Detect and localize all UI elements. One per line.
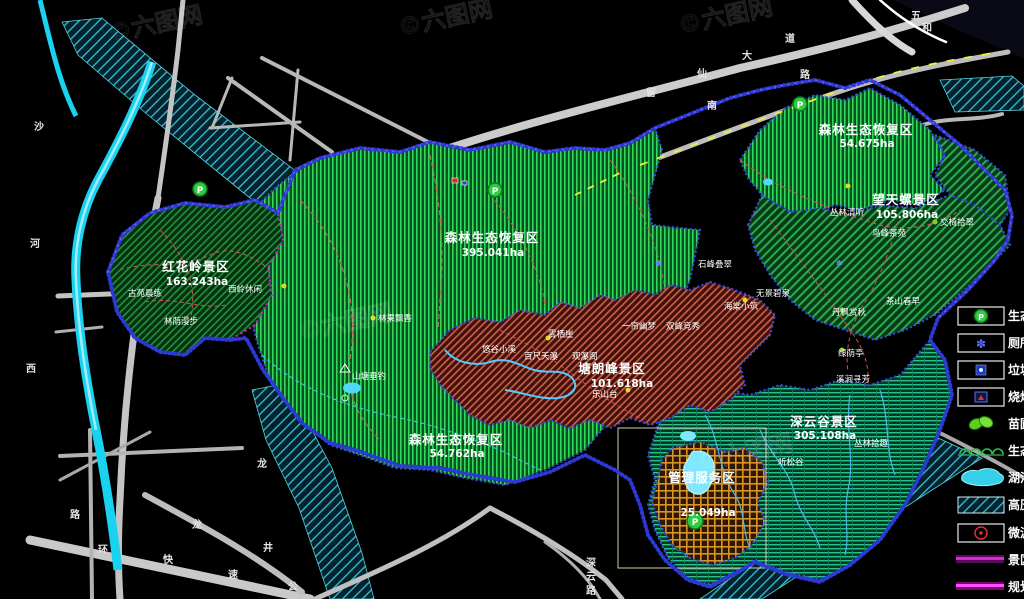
region-label: 红花岭景区 — [162, 259, 230, 274]
legend-item-microwave[interactable]: 微波站 — [958, 524, 1024, 542]
svg-text:P: P — [692, 518, 699, 528]
region-area: 163.243ha — [166, 276, 228, 288]
region-area: 101.618ha — [591, 378, 653, 390]
road-char: 云 — [586, 571, 596, 583]
pond-small — [763, 179, 773, 186]
legend-label: 规划红线 — [1008, 579, 1024, 594]
point-label: 海棠小筑 — [724, 301, 759, 312]
cad-map-viewport: P P P P ✽ ✽ 红花岭景区 163.243ha 森林生态恢复区 395.… — [0, 0, 1024, 599]
svg-text:P: P — [197, 186, 204, 196]
microwave-icon-dot — [979, 531, 983, 535]
road-char: 龙 — [256, 457, 267, 470]
legend-label: 湖泊 — [1008, 470, 1024, 485]
region-area: 105.806ha — [876, 209, 938, 221]
parking-icon[interactable]: P — [488, 183, 502, 197]
facility-icon — [462, 181, 467, 185]
road-char: 仙 — [697, 67, 707, 80]
road-char: 西 — [26, 363, 36, 375]
road-char: 留 — [646, 86, 656, 99]
road-char: 龙 — [191, 518, 202, 531]
bbq-site-icon — [452, 178, 458, 183]
road-char: 深 — [586, 556, 596, 569]
point-label: 溪涧寻芳 — [836, 374, 870, 385]
region-label: 深云谷景区 — [790, 414, 858, 429]
pond-fishing — [343, 383, 361, 394]
scenic-boundary-icon-core — [956, 557, 1004, 560]
legend-label: 生态长廊 — [1008, 443, 1024, 458]
toilet-icon: ✽ — [836, 259, 843, 268]
road-char: 公 — [288, 581, 298, 593]
road-grid-sw[interactable] — [90, 430, 92, 599]
region-area: 305.108ha — [794, 430, 856, 442]
road-char: 环 — [98, 544, 108, 556]
map-canvas: P P P P ✽ ✽ 红花岭景区 163.243ha 森林生态恢复区 395.… — [0, 0, 1024, 599]
point-label: 双峰竞秀 — [666, 321, 701, 332]
road-char: 路 — [800, 68, 811, 81]
point-label: 西岭休闲 — [228, 284, 262, 295]
pond-small — [680, 431, 696, 441]
point-label: 丹枫赏秋 — [832, 307, 867, 318]
region-label: 森林生态恢复区 — [409, 432, 504, 447]
point-label: 石峰叠翠 — [698, 259, 733, 270]
point-label: 百尺天瀑 — [524, 351, 559, 362]
region-area: 54.675ha — [839, 138, 894, 150]
legend-item-toilet[interactable]: ✽ 厕所 — [958, 334, 1024, 352]
planning-line-icon-core — [956, 584, 1004, 587]
legend-label: 厕所 — [1008, 335, 1024, 350]
legend-label: 高压走廊 — [1008, 497, 1024, 512]
point-label: 茶山春早 — [886, 296, 921, 307]
road-char: 井 — [263, 541, 273, 554]
point-label: 鸟峰茶苑 — [872, 228, 907, 239]
legend-item-bbq[interactable]: 烧烤场 — [958, 388, 1024, 406]
parking-icon[interactable]: P — [793, 97, 807, 111]
road-char: 速 — [228, 568, 238, 581]
point-label: 丛林拾趣 — [854, 438, 889, 449]
region-label: 森林生态恢复区 — [445, 230, 540, 245]
road-char: 沙 — [34, 121, 44, 133]
region-label: 塘朗峰景区 — [578, 361, 646, 376]
road-char: 道 — [785, 32, 795, 45]
hv-corridor-icon — [958, 497, 1004, 513]
road-char: 快 — [162, 553, 174, 566]
point-label: 绿荫亭 — [838, 348, 864, 359]
point-label: 山塘垂钓 — [352, 371, 386, 382]
region-area: 54.762ha — [429, 448, 484, 460]
point-label: 乐山台 — [592, 389, 618, 400]
road-char: 南 — [707, 99, 717, 112]
legend-label: 微波站 — [1007, 525, 1024, 540]
region-label: 森林生态恢复区 — [819, 122, 914, 137]
point-label: 丛林清听 — [830, 207, 865, 218]
legend-item-lake[interactable]: 湖泊 — [962, 469, 1024, 486]
poi-dot — [282, 284, 287, 289]
region-area: 395.041ha — [462, 247, 524, 259]
legend-item-hv[interactable]: 高压走廊 — [958, 497, 1024, 513]
legend-label: 苗圃 — [1008, 416, 1024, 431]
road-char: 河 — [30, 238, 40, 250]
road-char: 路 — [586, 584, 597, 597]
legend-label: 垃圾箱 — [1008, 362, 1024, 377]
point-label: 悠谷小溪 — [482, 344, 517, 355]
toilet-icon: ✽ — [976, 337, 986, 351]
point-label: 林荫漫步 — [164, 316, 198, 327]
parking-icon[interactable]: P — [193, 182, 207, 196]
poi-dot — [846, 184, 851, 189]
legend-label: 生态停车场 — [1008, 308, 1024, 323]
point-label: 古苑晨练 — [128, 288, 163, 299]
point-label: 一帘幽梦 — [622, 321, 657, 332]
legend-label: 烧烤场 — [1008, 389, 1024, 404]
road-char: 五 — [911, 10, 921, 22]
svg-text:P: P — [492, 187, 499, 197]
region-label: 望天螺景区 — [872, 192, 940, 207]
point-label: 雾栖崖 — [548, 329, 574, 340]
hv-corridor-east[interactable] — [940, 76, 1024, 112]
road-char: 大 — [742, 49, 752, 62]
lake-icon — [962, 469, 1004, 486]
point-label: 观瀑阁 — [572, 351, 598, 362]
toilet-icon: ✽ — [655, 259, 662, 268]
road-char: 和 — [921, 21, 932, 34]
legend-item-parking[interactable]: P 生态停车场 — [958, 307, 1024, 325]
point-label: 无景碧泉 — [756, 288, 791, 299]
road-char: 路 — [70, 508, 81, 521]
legend-item-trash[interactable]: 垃圾箱 — [958, 361, 1024, 379]
legend-label: 景区界线 — [1008, 552, 1024, 567]
trash-icon-detail — [979, 368, 983, 372]
svg-text:P: P — [797, 101, 804, 111]
region-area: 25.049ha — [680, 507, 735, 519]
parking-icon-letter: P — [978, 313, 984, 322]
point-label: 交椅拾翠 — [940, 217, 975, 228]
